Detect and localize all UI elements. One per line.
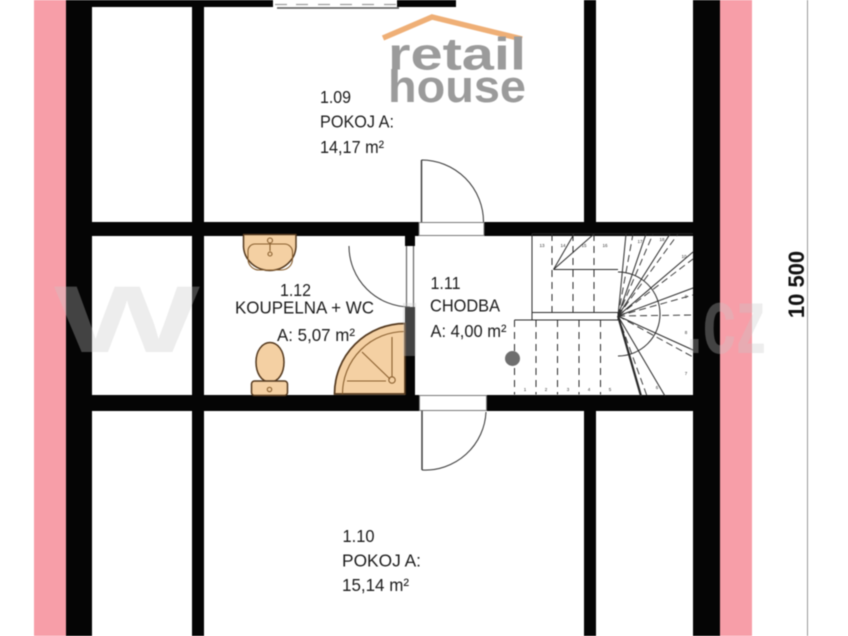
svg-text:house: house <box>388 61 526 112</box>
svg-text:A: 5,07 m²: A: 5,07 m² <box>277 325 355 345</box>
svg-text:13: 13 <box>539 243 545 248</box>
svg-text:POKOJ A:: POKOJ A: <box>342 551 421 571</box>
svg-text:15: 15 <box>581 243 587 248</box>
svg-text:18: 18 <box>659 237 665 242</box>
svg-text:A: 4,00 m²: A: 4,00 m² <box>431 321 507 341</box>
svg-text:10 500: 10 500 <box>784 251 809 318</box>
svg-text:15,14 m²: 15,14 m² <box>342 575 409 595</box>
svg-text:14: 14 <box>560 243 566 248</box>
svg-text:W: W <box>54 267 201 373</box>
svg-text:16: 16 <box>602 243 608 248</box>
svg-text:KOUPELNA + WC: KOUPELNA + WC <box>235 298 374 318</box>
svg-text:1.10: 1.10 <box>343 526 375 546</box>
svg-text:1.09: 1.09 <box>320 87 351 107</box>
svg-text:.cz: .cz <box>686 268 766 373</box>
svg-text:14,17 m²: 14,17 m² <box>320 137 384 157</box>
svg-text:10: 10 <box>681 254 687 259</box>
svg-text:1.11: 1.11 <box>431 273 461 293</box>
svg-text:POKOJ A:: POKOJ A: <box>320 112 394 132</box>
svg-text:CHODBA: CHODBA <box>430 296 500 316</box>
svg-text:17: 17 <box>637 239 643 244</box>
